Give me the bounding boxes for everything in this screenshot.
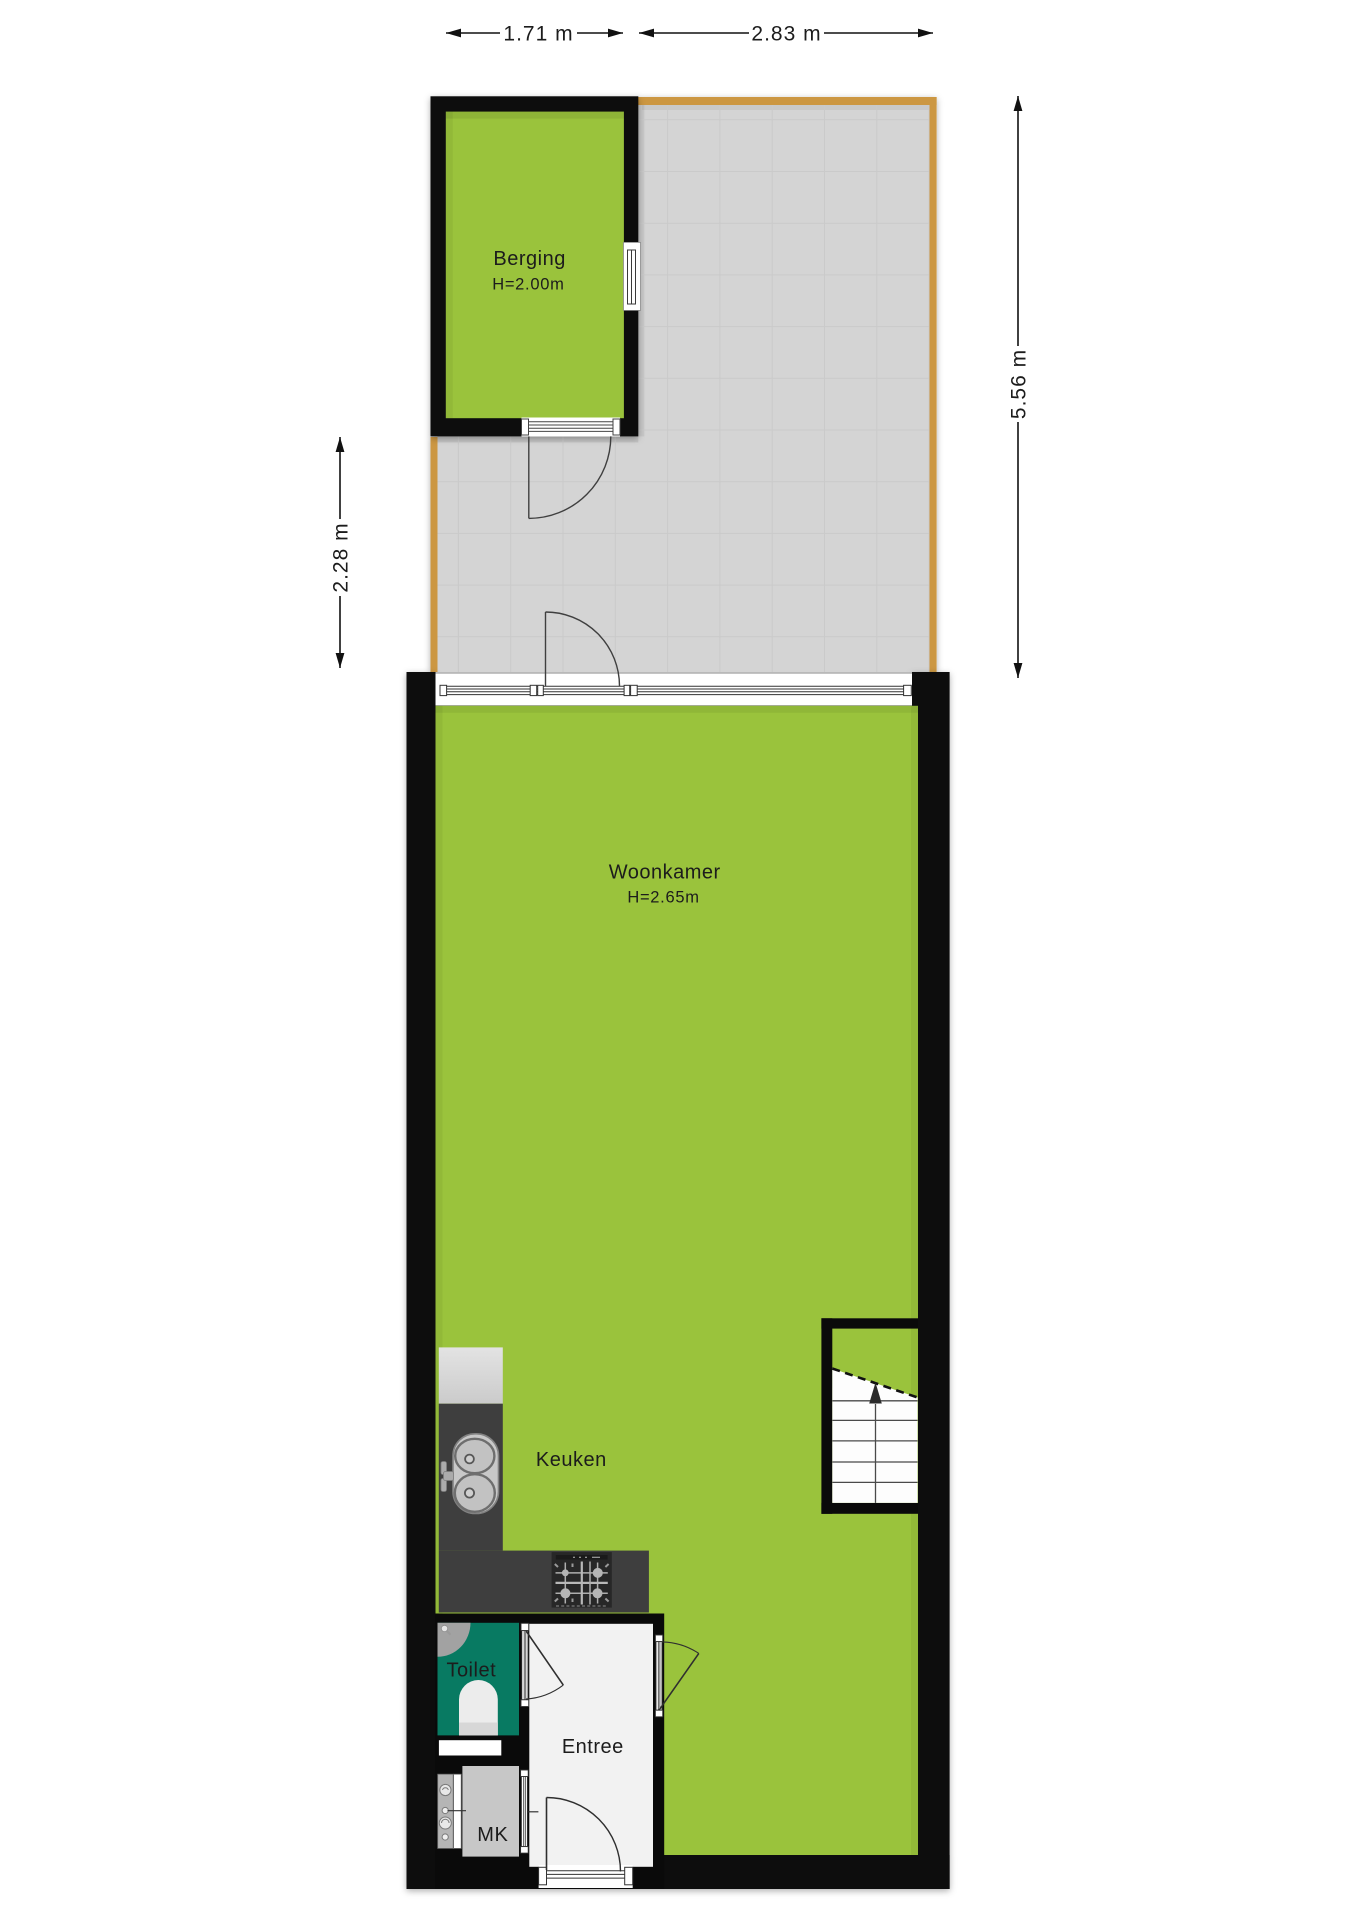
svg-text:2.28 m: 2.28 m: [330, 522, 353, 592]
svg-text:Woonkamer: Woonkamer: [609, 861, 721, 883]
svg-text:Toilet: Toilet: [446, 1660, 496, 1682]
svg-text:Entree: Entree: [562, 1736, 624, 1758]
svg-text:MK: MK: [477, 1824, 508, 1846]
svg-text:1.71 m: 1.71 m: [503, 23, 573, 46]
svg-text:5.56 m: 5.56 m: [1008, 349, 1031, 419]
svg-text:Berging: Berging: [493, 248, 565, 270]
svg-text:2.83 m: 2.83 m: [751, 23, 821, 46]
svg-text:Keuken: Keuken: [536, 1449, 607, 1471]
svg-text:H=2.65m: H=2.65m: [627, 889, 699, 907]
svg-text:H=2.00m: H=2.00m: [492, 276, 564, 294]
